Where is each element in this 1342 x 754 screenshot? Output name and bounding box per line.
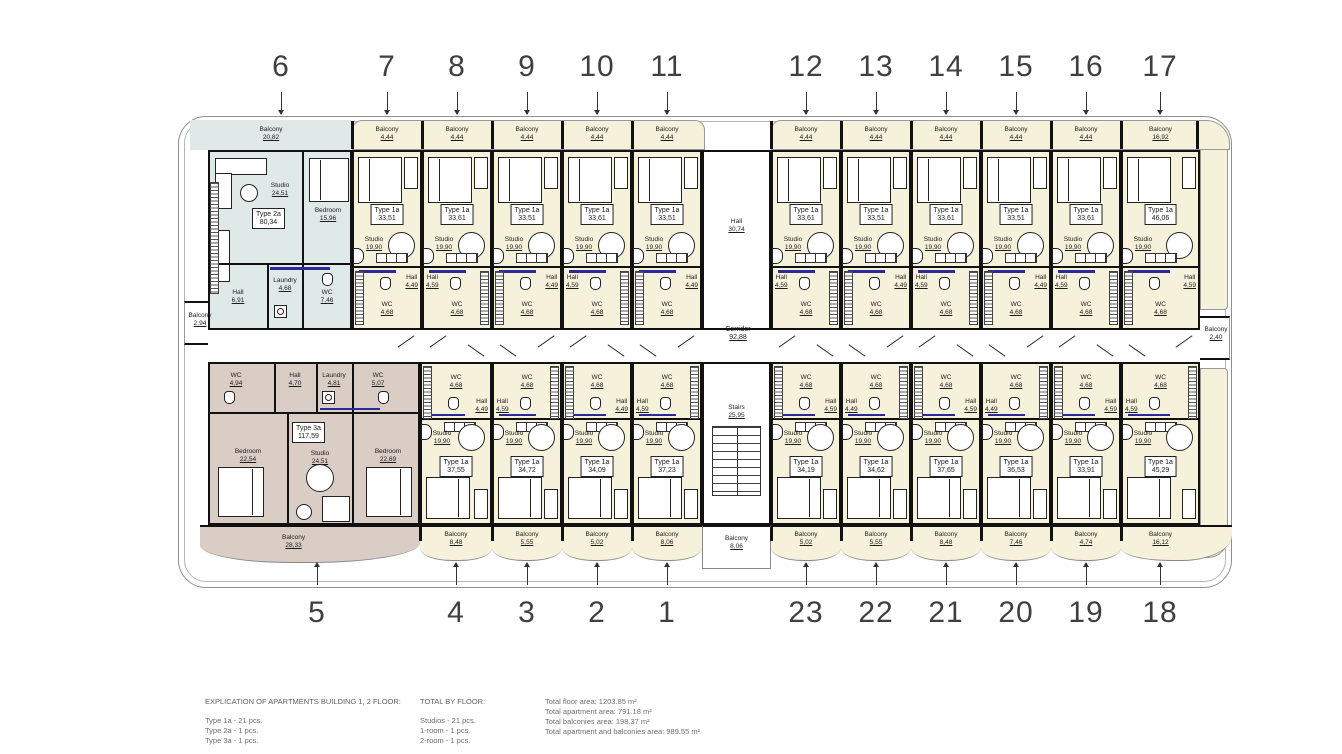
legend-row: 1-room - 1 pcs.	[420, 726, 530, 736]
studio-label: Studio19,90	[496, 430, 532, 445]
unit-area: 33,51	[864, 215, 889, 223]
unit-type-label: Type 1a 46,06	[1144, 204, 1177, 225]
bathroom-zone: WC4,68 Hall4,59	[1123, 266, 1198, 328]
balcony-label-unit-10: Balcony4,44	[562, 126, 632, 141]
bed-furniture	[426, 477, 470, 519]
wc-label: WC4,68	[1154, 374, 1167, 389]
unit-11: Type 1a 33,51 Studio19,90 WC4,68 Hall4,4…	[632, 150, 702, 330]
wardrobe-furniture	[684, 489, 698, 519]
studio-label: Studio19,90	[1055, 430, 1091, 445]
round-table	[668, 424, 695, 451]
unit-21: WC4,68 Hall4,59 Studio19,90 Type 1a 37,6…	[911, 362, 981, 525]
balcony-right-label: Balcony 2,40	[1196, 326, 1236, 341]
studio-label: Studio19,90	[845, 430, 881, 445]
wc-label: WC4,68	[591, 301, 604, 316]
unit-2: WC4,68 Hall4,49 Studio19,90 Type 1a 34,0…	[562, 362, 632, 525]
balcony-label-unit-13: Balcony4,44	[841, 126, 911, 141]
unit-type: Type 1a	[1074, 459, 1099, 467]
toilet-fixture	[1079, 397, 1090, 410]
bathroom-zone: WC4,68 Hall4,59	[1123, 364, 1198, 420]
hall-label: Hall4,49	[685, 274, 698, 289]
unit-20: WC4,68 Hall4,49 Studio19,90 Type 1a 36,5…	[981, 362, 1051, 525]
entry-hatch	[984, 271, 993, 325]
unit-type-label: Type 1a 33,61	[1070, 204, 1103, 225]
sink-fixture	[842, 248, 853, 264]
axis-tick	[387, 92, 388, 114]
wc-label: WC4,94	[214, 372, 258, 387]
wc-label: WC5,07	[356, 372, 400, 387]
toilet-fixture	[799, 397, 810, 410]
entry-hatch	[1039, 366, 1048, 419]
kitchen-counter	[865, 253, 897, 263]
service-zone: WC4,94 Hall4,70 Laundry4,81 WC5,07	[210, 364, 418, 414]
unit-type-label: Type 1a 33,61	[930, 204, 963, 225]
partition-wall	[267, 265, 269, 328]
toilet-fixture	[448, 397, 459, 410]
studio-label: Studio19,90	[775, 430, 811, 445]
balcony-label-unit-11: Balcony4,44	[632, 126, 702, 141]
toilet-fixture	[869, 397, 880, 410]
bath-accent-line	[499, 414, 536, 417]
balcony-6: Balcony 20,82	[190, 120, 352, 150]
axis-tick	[806, 92, 807, 114]
round-table	[1166, 424, 1193, 451]
entry-hatch	[914, 366, 923, 419]
balcony-5-label: Balcony 28,33	[282, 534, 305, 549]
axis-number-4: 4	[421, 596, 491, 630]
unit-area: 33,91	[1074, 467, 1099, 475]
wardrobe-furniture	[1033, 489, 1047, 519]
toilet-fixture	[660, 397, 671, 410]
hall-label: Hall6,91	[220, 289, 256, 304]
kitchen-counter	[656, 253, 688, 263]
wc-label: WC4,68	[800, 374, 813, 389]
unit-type: Type 1a	[864, 207, 889, 215]
unit-type: Type 1a	[1148, 207, 1173, 215]
balcony-label-unit-19: Balcony4,74	[1051, 531, 1121, 546]
hall-label: Hall4,59	[964, 398, 977, 413]
axis-number-22: 22	[841, 596, 911, 630]
hall-label: Hall4,59	[636, 398, 649, 413]
wardrobe-furniture	[474, 489, 488, 519]
kitchen-counter	[1145, 253, 1177, 263]
balcony-label-unit-18: Balcony16,12	[1121, 531, 1200, 546]
corridor-label: Corridor 92,88	[690, 326, 786, 341]
legend-row: Total balconies area: 198.37 m²	[545, 717, 805, 727]
toilet-fixture	[224, 391, 235, 404]
kitchen-counter	[1005, 253, 1037, 263]
hall-label: Hall4,59	[566, 274, 579, 289]
unit-type: Type 1a	[655, 207, 680, 215]
bed-furniture	[847, 157, 891, 203]
unit-22: WC4,68 Hall4,49 Studio19,90 Type 1a 34,6…	[841, 362, 911, 525]
wc-label: WC4,68	[1154, 301, 1167, 316]
entry-hatch	[829, 271, 838, 325]
bath-accent-line	[1058, 270, 1095, 273]
partition-wall	[352, 414, 354, 525]
bed-furniture	[568, 477, 612, 519]
washer-fixture	[274, 305, 287, 318]
toilet-fixture	[590, 277, 601, 290]
hall-label: Hall4,59	[1055, 274, 1068, 289]
unit-area: 33,51	[655, 215, 680, 223]
coffee-table	[296, 504, 312, 520]
entry-hatch	[550, 366, 559, 419]
unit-area: 33,51	[375, 215, 400, 223]
bathroom-zone: WC4,68 Hall4,59	[773, 364, 839, 420]
washer-fixture	[322, 391, 335, 404]
wc-label: WC4,68	[521, 301, 534, 316]
unit-5: WC4,94 Hall4,70 Laundry4,81 WC5,07 Bedro…	[208, 362, 420, 525]
toilet-fixture	[450, 277, 461, 290]
legend-title: EXPLICATION OF APARTMENTS BUILDING 1, 2 …	[205, 697, 410, 707]
axis-number-15: 15	[981, 50, 1051, 84]
axis-tick	[1016, 92, 1017, 114]
unit-17: Type 1a 46,06 Studio19,90 WC4,68 Hall4,5…	[1121, 150, 1200, 330]
toilet-fixture	[1149, 397, 1160, 410]
bedroom-label: Bedroom22,69	[358, 448, 418, 463]
bed-furniture	[777, 157, 821, 203]
unit-19: WC4,68 Hall4,59 Studio19,90 Type 1a 33,9…	[1051, 362, 1121, 525]
unit-type: Type 1a	[515, 207, 540, 215]
wc-label: WC4,68	[451, 301, 464, 316]
bath-accent-line	[1058, 414, 1095, 417]
unit-type: Type 1a	[585, 207, 610, 215]
kitchen-counter	[376, 253, 408, 263]
wardrobe-furniture	[893, 489, 907, 519]
toilet-fixture	[660, 277, 671, 290]
unit-type-label: Type 1a 34,62	[860, 456, 893, 477]
toilet-fixture	[939, 277, 950, 290]
bath-accent-line	[848, 270, 885, 273]
bed-furniture	[358, 157, 402, 203]
toilet-fixture	[1009, 397, 1020, 410]
sink-fixture	[563, 248, 574, 264]
bathroom-zone: WC4,68 Hall4,49	[983, 364, 1049, 420]
unit-type-label: Type 1a 34,72	[511, 456, 544, 477]
unit-type: Type 1a	[585, 459, 610, 467]
toilet-fixture	[520, 277, 531, 290]
toilet-fixture	[869, 277, 880, 290]
wardrobe-furniture	[474, 157, 488, 189]
axis-number-10: 10	[562, 50, 632, 84]
legend-row: Type 2a - 1 pcs.	[205, 726, 410, 736]
bed-furniture	[568, 157, 612, 203]
wardrobe-furniture	[823, 489, 837, 519]
unit-16: Type 1a 33,61 Studio19,90 WC4,68 Hall4,5…	[1051, 150, 1121, 330]
kitchen-counter	[935, 253, 967, 263]
axis-number-21: 21	[911, 596, 981, 630]
entry-hatch	[423, 366, 432, 419]
studio-label: Studio24,51	[260, 182, 300, 197]
balcony-label-unit-15: Balcony4,44	[981, 126, 1051, 141]
unit-type-label: Type 1a 37,55	[440, 456, 473, 477]
wardrobe-furniture	[614, 489, 628, 519]
bathroom-zone: WC4,68 Hall4,49	[983, 266, 1049, 328]
unit-area: 33,61	[585, 215, 610, 223]
axis-tick	[1016, 563, 1017, 585]
unit-area: 34,62	[864, 467, 889, 475]
bed-furniture	[987, 477, 1031, 519]
legend-areas: Total floor area: 1203.85 m² Total apart…	[545, 697, 805, 737]
bed-furniture	[1057, 157, 1101, 203]
wardrobe-furniture	[963, 489, 977, 519]
hall-label: Hall4,59	[496, 398, 509, 413]
toilet-fixture	[380, 277, 391, 290]
balcony-label-unit-7: Balcony4,44	[352, 126, 422, 141]
unit-type: Type 1a	[515, 459, 540, 467]
kitchen-counter	[586, 253, 618, 263]
entry-hatch	[969, 271, 978, 325]
bed-furniture	[638, 157, 682, 203]
hall-label: Hall4,59	[426, 274, 439, 289]
unit-area: 37,55	[444, 467, 469, 475]
round-table	[807, 424, 834, 451]
legend-row: Total floor area: 1203.85 m²	[545, 697, 805, 707]
stairs: Stairs 25,95	[702, 362, 771, 525]
wardrobe-furniture	[1182, 489, 1196, 519]
axis-tick	[597, 563, 598, 585]
wall-hatch	[210, 182, 219, 294]
axis-number-6: 6	[246, 50, 316, 84]
unit-type-label: Type 1a 33,61	[581, 204, 614, 225]
kitchen-counter	[516, 253, 548, 263]
round-table	[947, 424, 974, 451]
entry-hatch	[1124, 271, 1133, 325]
unit-7: Type 1a 33,51 Studio19,90 WC4,68 Hall4,4…	[352, 150, 422, 330]
axis-number-11: 11	[632, 50, 702, 84]
hall-label: Hall4,59	[1183, 274, 1196, 289]
bath-accent-line	[1128, 414, 1170, 417]
unit-type-label: Type 1a 34,19	[790, 456, 823, 477]
wc-label: WC4,68	[1010, 374, 1023, 389]
axis-tick	[946, 563, 947, 585]
wardrobe-furniture	[544, 157, 558, 189]
balcony-label-unit-1: Balcony8,06	[632, 531, 702, 546]
unit-type: Type 1a	[794, 207, 819, 215]
wc-label: WC4,68	[661, 301, 674, 316]
kitchen-counter	[1075, 253, 1107, 263]
partition-wall	[302, 265, 304, 328]
round-table	[528, 424, 555, 451]
wc-label: WC4,68	[521, 374, 534, 389]
legend-explication: EXPLICATION OF APARTMENTS BUILDING 1, 2 …	[205, 697, 410, 746]
wc-label: WC4,68	[870, 301, 883, 316]
bathroom-zone: WC4,68 Hall4,59	[913, 364, 979, 420]
legend-row: Studios - 21 pcs.	[420, 716, 530, 726]
axis-tick	[597, 92, 598, 114]
wardrobe-furniture	[1103, 157, 1117, 189]
bathroom-zone: WC4,68 Hall4,49	[634, 266, 700, 328]
unit-type-label: Type 3a117,59	[292, 422, 325, 443]
toilet-fixture	[322, 273, 333, 286]
balcony-label-unit-9: Balcony4,44	[492, 126, 562, 141]
axis-tick	[806, 563, 807, 585]
unit-area: 46,06	[1148, 215, 1173, 223]
unit-type-label: Type 1a 33,51	[511, 204, 544, 225]
axis-number-23: 23	[771, 596, 841, 630]
wardrobe-furniture	[823, 157, 837, 189]
unit-type: Type 1a	[864, 459, 889, 467]
kitchen-counter	[446, 253, 478, 263]
bed-furniture	[1127, 157, 1171, 203]
sink-fixture	[1122, 248, 1133, 264]
kitchen-counter	[795, 253, 827, 263]
unit-type: Type 1a	[1004, 459, 1029, 467]
bathroom-zone: WC4,68 Hall4,59	[634, 364, 700, 420]
unit-type: Type 1a	[794, 459, 819, 467]
hall-label: Hall4,49	[405, 274, 418, 289]
bed-furniture	[638, 477, 682, 519]
unit-23: WC4,68 Hall4,59 Studio19,90 Type 1a 34,1…	[771, 362, 841, 525]
axis-number-14: 14	[911, 50, 981, 84]
hall-label: Hall4,49	[894, 274, 907, 289]
bed-furniture	[1127, 477, 1171, 519]
hall-label: Hall4,59	[824, 398, 837, 413]
entry-hatch	[620, 271, 629, 325]
hall-label: Hall4,49	[475, 398, 488, 413]
unit-type-label: Type 1a 37,65	[930, 456, 963, 477]
round-table	[877, 424, 904, 451]
sink-fixture	[912, 248, 923, 264]
wardrobe-furniture	[963, 157, 977, 189]
legend-row: Type 1a - 21 pcs.	[205, 716, 410, 726]
unit-area: 33,61	[1074, 215, 1099, 223]
unit-type-label: Type 1a 34,09	[581, 456, 614, 477]
balcony-label-unit-12: Balcony4,44	[771, 126, 841, 141]
wardrobe-furniture	[1182, 157, 1196, 189]
axis-tick	[527, 92, 528, 114]
balcony-label-unit-22: Balcony5,55	[841, 531, 911, 546]
unit-type-label: Type 2a80,34	[252, 208, 285, 229]
bath-accent-line	[639, 414, 676, 417]
axis-number-8: 8	[422, 50, 492, 84]
sink-fixture	[1052, 248, 1063, 264]
toilet-fixture	[799, 277, 810, 290]
hall-label: Hall4,70	[276, 372, 314, 387]
bathroom-zone: WC4,68 Hall4,49	[494, 266, 560, 328]
bathroom-zone: WC4,68 Hall4,49	[564, 364, 630, 420]
bed-furniture	[1057, 477, 1101, 519]
coffee-table	[240, 184, 258, 202]
hall-label: Hall4,49	[545, 274, 558, 289]
unit-type: Type 1a	[934, 207, 959, 215]
balcony-label-unit-20: Balcony7,46	[981, 531, 1051, 546]
wc-label: WC4,68	[661, 374, 674, 389]
stair-steps	[712, 426, 761, 496]
wc-label: WC4,68	[870, 374, 883, 389]
bathroom-zone: WC4,68 Hall4,59	[773, 266, 839, 328]
axis-number-13: 13	[841, 50, 911, 84]
entry-hatch	[844, 271, 853, 325]
sink-fixture	[493, 248, 504, 264]
axis-number-17: 17	[1125, 50, 1195, 84]
bath-accent-line	[988, 414, 1025, 417]
service-zone: Hall6,91 Laundry4,68 WC7,46	[210, 263, 350, 328]
entry-hatch	[774, 366, 783, 419]
hall-label: Hall4,49	[1034, 274, 1047, 289]
wc-label: WC4,68	[940, 374, 953, 389]
unit-area: 34,09	[585, 467, 610, 475]
entry-hatch	[480, 271, 489, 325]
balcony-label-unit-14: Balcony4,44	[911, 126, 981, 141]
studio-label: Studio19,90	[985, 430, 1021, 445]
bathroom-zone: WC4,68 Hall4,59	[1053, 266, 1119, 328]
sink-fixture	[423, 248, 434, 264]
axis-tick	[667, 563, 668, 585]
bed-furniture	[218, 467, 264, 517]
toilet-fixture	[1149, 277, 1160, 290]
bed-furniture	[498, 157, 542, 203]
entry-hatch	[1054, 366, 1063, 419]
bath-accent-line	[569, 414, 606, 417]
unit-15: Type 1a 33,51 Studio19,90 WC4,68 Hall4,4…	[981, 150, 1051, 330]
hall-label: Hall4,59	[1104, 398, 1117, 413]
unit-type-label: Type 1a 36,53	[1000, 456, 1033, 477]
unit-type-label: Type 1a 33,51	[1000, 204, 1033, 225]
unit-area: 34,72	[515, 467, 540, 475]
wc-label: WC4,68	[450, 374, 463, 389]
balcony-label-unit-8: Balcony4,44	[422, 126, 492, 141]
axis-tick	[1160, 92, 1161, 114]
axis-number-12: 12	[771, 50, 841, 84]
partition-wall	[302, 152, 304, 265]
stairs-label: Stairs 25,95	[728, 404, 745, 419]
axis-tick	[457, 92, 458, 114]
unit-type: Type 1a	[375, 207, 400, 215]
bath-accent-line	[918, 270, 955, 273]
bath-accent-line	[918, 414, 955, 417]
bedroom-label: Bedroom22,54	[218, 448, 278, 463]
hall-label: Hall4,59	[775, 274, 788, 289]
unit-area: 33,61	[934, 215, 959, 223]
entry-hatch	[1188, 366, 1197, 419]
unit-type: Type 1a	[1074, 207, 1099, 215]
unit-12: Type 1a 33,61 Studio19,90 WC4,68 Hall4,5…	[771, 150, 841, 330]
entry-hatch	[565, 366, 574, 419]
unit-type-label: Type 1a 33,61	[790, 204, 823, 225]
toilet-fixture	[1009, 277, 1020, 290]
unit-18: WC4,68 Hall4,59 Studio19,90 Type 1a 45,2…	[1121, 362, 1200, 525]
unit-type-label: Type 1a 33,51	[371, 204, 404, 225]
wardrobe-furniture	[404, 157, 418, 189]
unit-6: Studio24,51 Type 2a80,34 Bedroom15,96 Ha…	[208, 150, 352, 330]
balcony-label-unit-23: Balcony5,02	[771, 531, 841, 546]
bath-accent-line	[778, 414, 815, 417]
studio-label: Studio19,90	[566, 430, 602, 445]
hall-top: Hall 30,74	[702, 150, 771, 330]
unit-type: Type 1a	[444, 459, 469, 467]
unit-14: Type 1a 33,61 Studio19,90 WC4,68 Hall4,5…	[911, 150, 981, 330]
bathroom-zone: WC4,68 Hall4,49	[843, 266, 909, 328]
bedroom-label: Bedroom15,96	[306, 207, 350, 222]
round-table	[458, 424, 485, 451]
bed-furniture	[917, 477, 961, 519]
wc-label: WC4,68	[1010, 301, 1023, 316]
bath-accent-line	[320, 408, 380, 411]
bed-furniture	[428, 157, 472, 203]
unit-13: Type 1a 33,51 Studio19,90 WC4,68 Hall4,4…	[841, 150, 911, 330]
wc-label: WC4,68	[381, 301, 394, 316]
wardrobe-furniture	[1103, 489, 1117, 519]
bath-accent-line	[499, 270, 536, 273]
studio-label: Studio19,90	[424, 430, 460, 445]
unit-4: WC4,68 Hall4,49 Studio19,90 Type 1a 37,5…	[420, 362, 492, 525]
axis-tick	[527, 563, 528, 585]
bed-furniture	[309, 158, 349, 202]
axis-number-7: 7	[352, 50, 422, 84]
unit-area: 33,51	[515, 215, 540, 223]
